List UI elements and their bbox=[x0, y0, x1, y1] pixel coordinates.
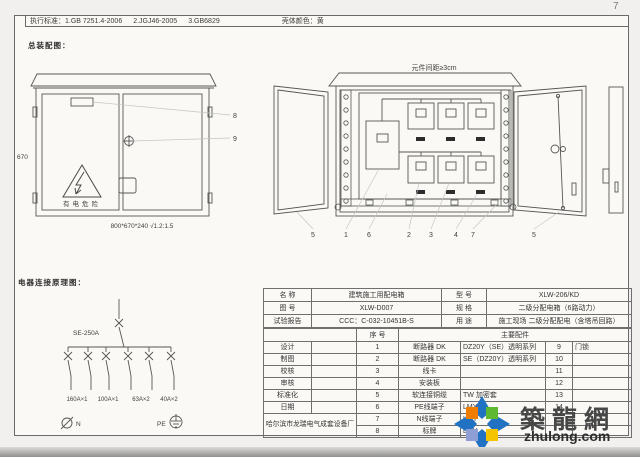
part-spec bbox=[461, 366, 546, 378]
pe-label: PE bbox=[157, 421, 166, 428]
part-spec: DZ20Y（SE）透明系列 bbox=[461, 342, 546, 354]
part-name bbox=[573, 378, 632, 390]
field-label: 规 格 bbox=[442, 302, 487, 315]
seq-no: 11 bbox=[546, 366, 573, 378]
svg-text:40A×2: 40A×2 bbox=[160, 397, 178, 403]
sign-blank bbox=[312, 402, 357, 414]
blank-cell bbox=[264, 329, 357, 342]
part-name: 断路器 DK bbox=[399, 354, 461, 366]
main-breaker-label: SE-250A bbox=[73, 330, 100, 337]
standards-bar: 执行标准： 1.GB 7251.4-2006 2.JGJ46-2005 3.GB… bbox=[25, 15, 629, 27]
schematic-section-title: 电器连接原理图： bbox=[18, 277, 86, 288]
svg-text:6: 6 bbox=[367, 232, 371, 239]
product-name: 建筑施工用配电箱 bbox=[312, 289, 442, 302]
field-label: 用 途 bbox=[442, 315, 487, 328]
right-door bbox=[514, 86, 586, 216]
mounting-rails bbox=[341, 90, 511, 206]
usage-value: 施工现场 二级分配配电（含塔吊回路） bbox=[487, 315, 632, 328]
callout-8: 8 bbox=[233, 113, 237, 120]
sign-blank bbox=[312, 354, 357, 366]
seq-header: 序 号 bbox=[357, 329, 399, 342]
electric-warning-icon bbox=[63, 165, 101, 197]
model-number: XLW-206/KD bbox=[487, 289, 632, 302]
svg-text:4: 4 bbox=[454, 232, 458, 239]
branch-rating-labels: 160A×1 100A×1 63A×2 40A×2 bbox=[67, 397, 179, 403]
field-label: 名 称 bbox=[264, 289, 312, 302]
sign-blank bbox=[312, 378, 357, 390]
svg-text:5: 5 bbox=[532, 232, 536, 239]
neutral-symbol-icon bbox=[61, 417, 73, 429]
part-name: 门锁 bbox=[573, 342, 632, 354]
test-report-number: CCC：C-032-10451B-S bbox=[312, 315, 442, 328]
spec-value: 二级分配电箱（6路动力） bbox=[487, 302, 632, 315]
seq-no: 4 bbox=[357, 378, 399, 390]
field-label: 型 号 bbox=[442, 289, 487, 302]
standard-item: 1.GB 7251.4-2006 bbox=[65, 18, 122, 25]
meter-window bbox=[119, 178, 136, 193]
sign-label: 校核 bbox=[264, 366, 312, 378]
cabinet-front-outline bbox=[31, 74, 216, 216]
sign-blank bbox=[312, 366, 357, 378]
component-spacing-note: 元件间距≥3cm bbox=[411, 63, 456, 72]
seq-no: 5 bbox=[357, 390, 399, 402]
sign-blank bbox=[312, 390, 357, 402]
open-view-drawing: 元件间距≥3cm bbox=[259, 59, 631, 254]
shell-color-value: 黄 bbox=[317, 16, 324, 26]
field-label: 试验报告 bbox=[264, 315, 312, 328]
seq-no: 2 bbox=[357, 354, 399, 366]
drawing-sheet: 执行标准： 1.GB 7251.4-2006 2.JGJ46-2005 3.GB… bbox=[14, 15, 629, 436]
front-view-drawing: 有电危险 670 800*670*240 √1.2:1.5 8 9 bbox=[17, 59, 253, 251]
size-spec: 800*670*240 √1.2:1.5 bbox=[111, 222, 174, 230]
sign-blank bbox=[312, 342, 357, 354]
scan-shadow bbox=[0, 447, 640, 457]
main-breaker bbox=[366, 121, 399, 169]
part-spec bbox=[461, 378, 546, 390]
seq-no: 8 bbox=[357, 426, 399, 438]
bottom-terminal-strip bbox=[335, 199, 516, 210]
watermark-url: zhulong.com bbox=[524, 428, 610, 444]
field-label: 图 号 bbox=[264, 302, 312, 315]
wiring-schematic: SE-250A 160A×1 100A×1 63A×2 40A×2 N PE bbox=[29, 293, 259, 441]
seq-no: 6 bbox=[357, 402, 399, 414]
callout-9: 9 bbox=[233, 136, 237, 143]
drawing-number: XLW-D007 bbox=[312, 302, 442, 315]
parts-header: 主要配件 bbox=[399, 329, 632, 342]
sign-label: 设计 bbox=[264, 342, 312, 354]
cabinet-open-outline bbox=[274, 73, 623, 216]
svg-text:3: 3 bbox=[429, 232, 433, 239]
svg-text:100A×1: 100A×1 bbox=[98, 397, 120, 403]
seq-no: 1 bbox=[357, 342, 399, 354]
seq-no: 3 bbox=[357, 366, 399, 378]
assembly-section-title: 总装配图： bbox=[28, 40, 71, 51]
svg-text:7: 7 bbox=[471, 232, 475, 239]
shell-color-label: 壳体颜色： bbox=[282, 16, 317, 26]
sign-label: 审核 bbox=[264, 378, 312, 390]
svg-text:2: 2 bbox=[407, 232, 411, 239]
sign-label: 日期 bbox=[264, 402, 312, 414]
sign-label: 标准化 bbox=[264, 390, 312, 402]
page-number: 7 bbox=[613, 1, 619, 12]
door-side-panel bbox=[609, 87, 623, 213]
neutral-label: N bbox=[76, 421, 81, 428]
seq-no: 9 bbox=[546, 342, 573, 354]
left-door bbox=[274, 86, 328, 214]
title-block-info-table: 名 称 建筑施工用配电箱 型 号 XLW-206/KD 图 号 XLW-D007… bbox=[263, 288, 632, 328]
door-rod-lock-icon bbox=[551, 94, 576, 209]
svg-text:5: 5 bbox=[311, 232, 315, 239]
standard-item: 2.JGJ46-2005 bbox=[133, 18, 177, 25]
standards-label: 执行标准： bbox=[30, 16, 65, 26]
part-spec: SE（DZ20Y）透明系列 bbox=[461, 354, 546, 366]
seq-no: 7 bbox=[357, 414, 399, 426]
zhulong-logo-icon bbox=[452, 394, 512, 454]
part-name bbox=[573, 354, 632, 366]
warning-text: 有电危险 bbox=[63, 199, 101, 208]
height-dimension: 670 bbox=[17, 154, 28, 161]
svg-text:63A×2: 63A×2 bbox=[132, 397, 150, 403]
breaker-panel bbox=[359, 93, 501, 199]
part-name: 断路器 DK bbox=[399, 342, 461, 354]
open-view-callouts: 5 1 6 2 3 4 7 5 bbox=[311, 232, 536, 239]
company-name: 哈尔滨市龙瑞电气成套设备厂 bbox=[264, 414, 357, 438]
seq-no: 10 bbox=[546, 354, 573, 366]
svg-text:160A×1: 160A×1 bbox=[67, 397, 89, 403]
part-name: 线卡 bbox=[399, 366, 461, 378]
standard-item: 3.GB6829 bbox=[188, 18, 220, 25]
nameplate bbox=[71, 98, 93, 106]
zhulong-watermark: 築龍網 zhulong.com bbox=[452, 394, 637, 452]
main-switch-symbol bbox=[115, 299, 124, 347]
part-name bbox=[573, 366, 632, 378]
sign-label: 制图 bbox=[264, 354, 312, 366]
part-name: 安装板 bbox=[399, 378, 461, 390]
svg-text:1: 1 bbox=[344, 232, 348, 239]
branch-switch-symbols bbox=[64, 347, 175, 390]
seq-no: 12 bbox=[546, 378, 573, 390]
earth-symbol-icon bbox=[170, 414, 182, 428]
